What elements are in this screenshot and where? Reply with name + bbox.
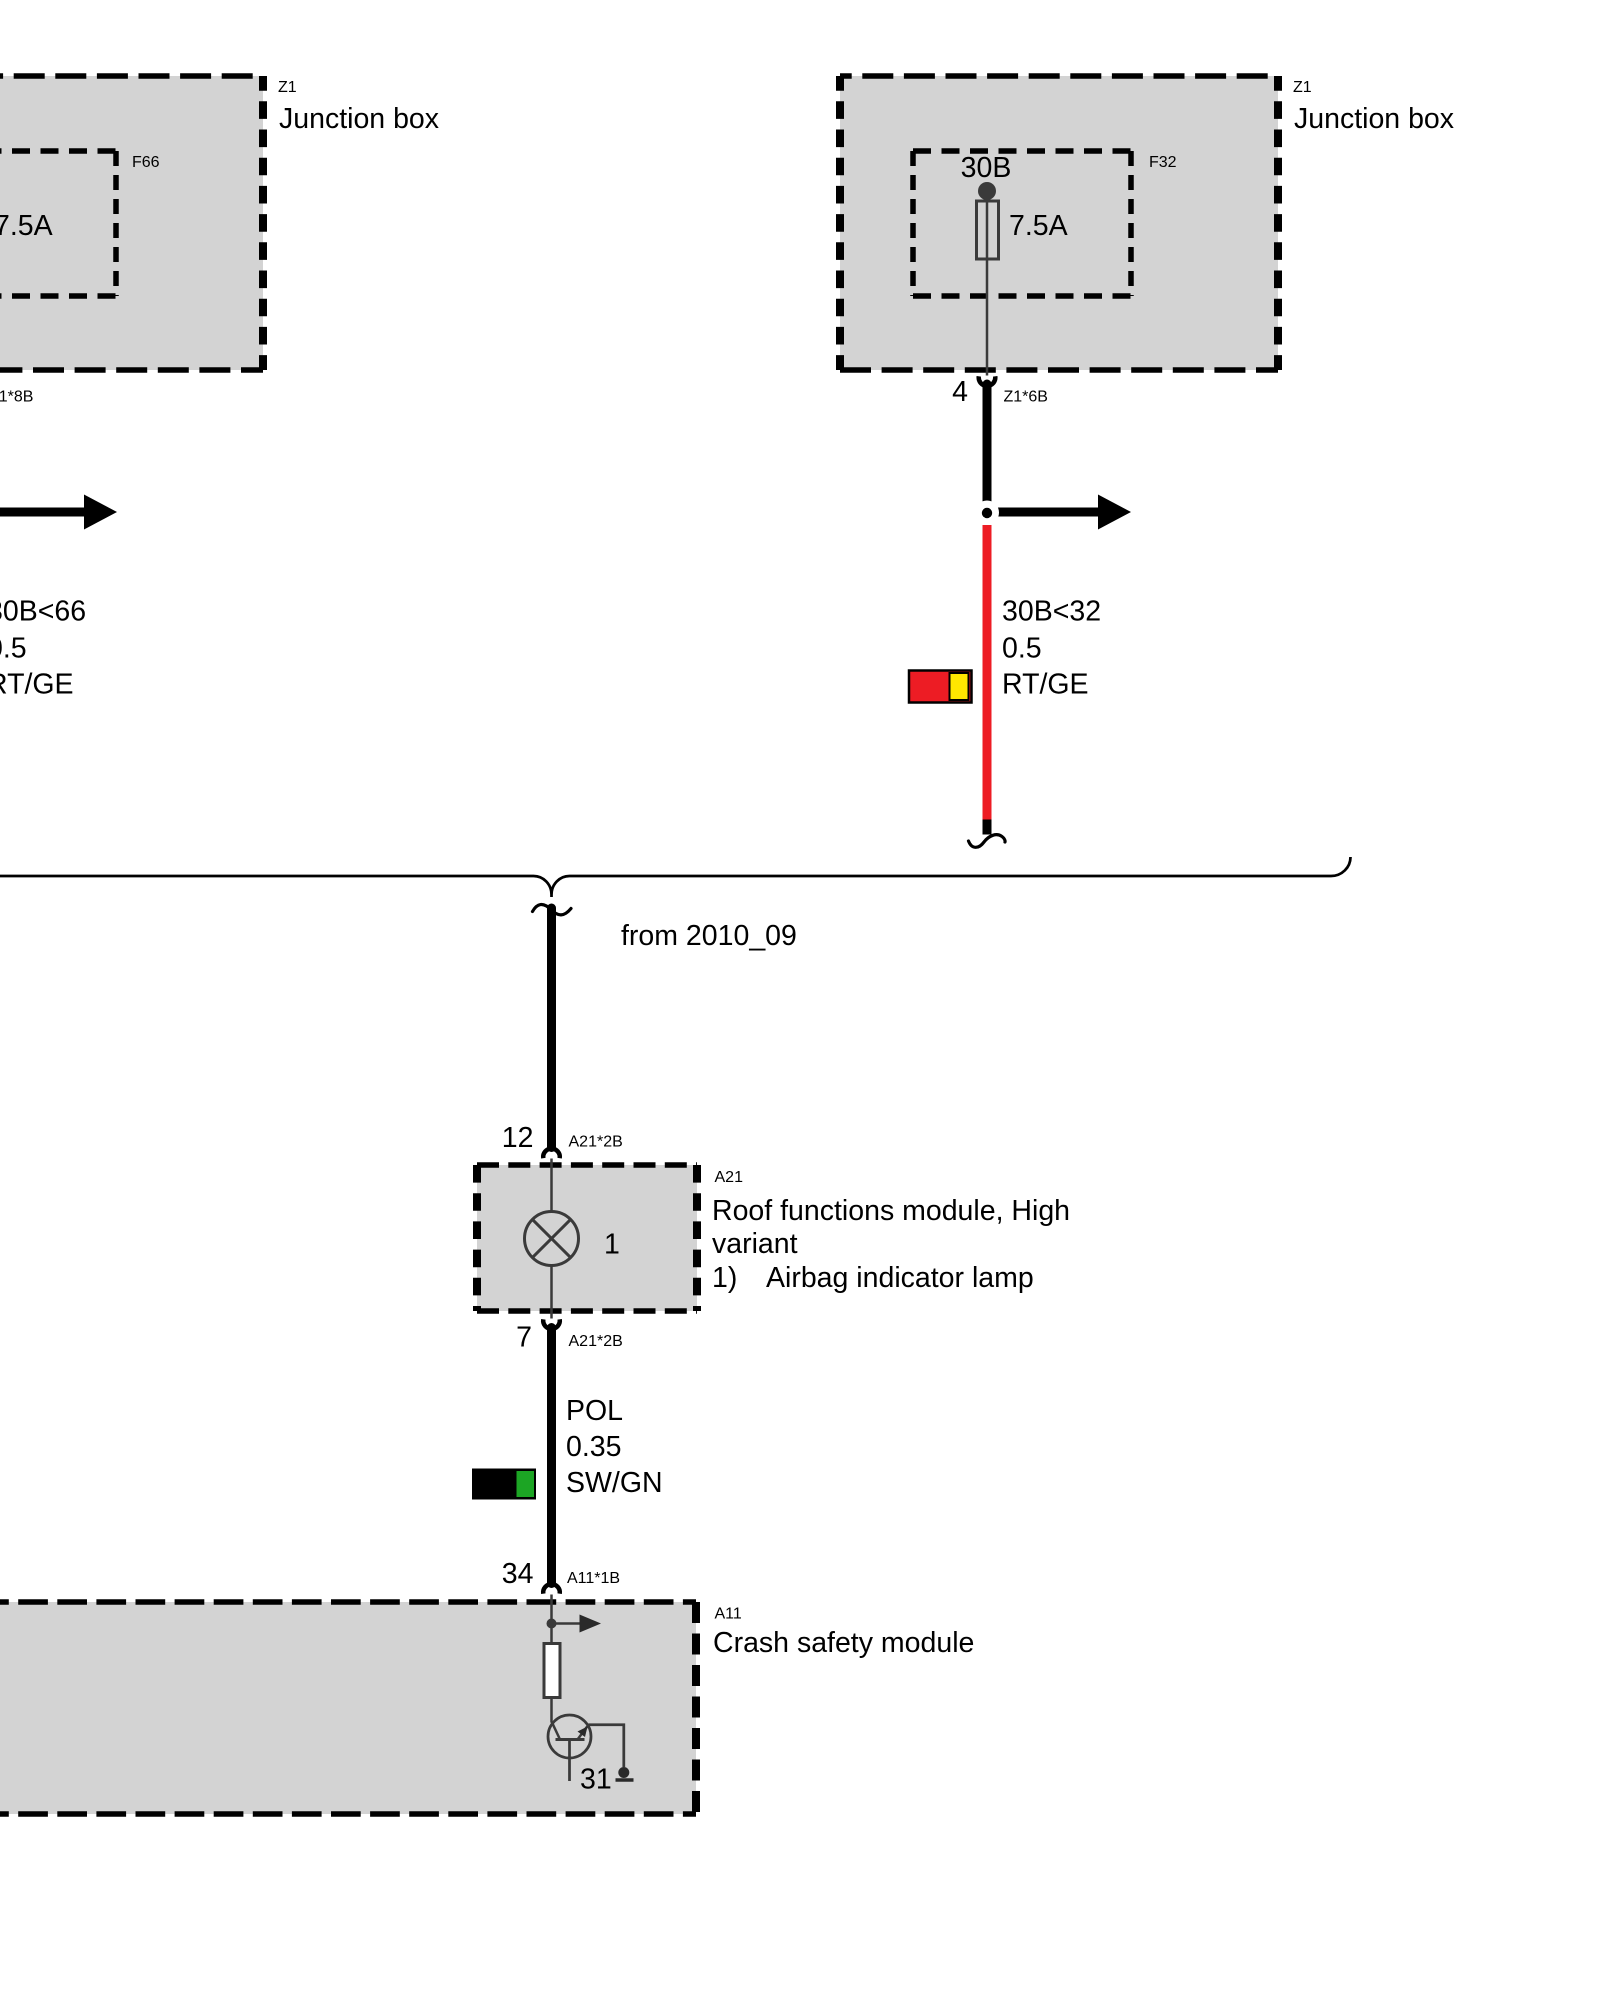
svg-text:A11: A11 — [715, 1606, 742, 1623]
svg-text:RT/GE: RT/GE — [0, 669, 74, 701]
svg-text:Junction box: Junction box — [279, 103, 439, 135]
svg-text:34: 34 — [502, 1558, 534, 1590]
svg-text:A21: A21 — [715, 1169, 744, 1186]
svg-text:A21*2B: A21*2B — [569, 1134, 623, 1151]
svg-text:7.5A: 7.5A — [1009, 210, 1068, 242]
svg-text:7.5A: 7.5A — [0, 210, 53, 242]
svg-text:12: 12 — [502, 1122, 534, 1154]
svg-text:Z1*6B: Z1*6B — [1004, 389, 1048, 406]
svg-text:RT/GE: RT/GE — [1002, 669, 1089, 701]
svg-text:Z1*8B: Z1*8B — [0, 389, 33, 406]
svg-text:Z1: Z1 — [278, 79, 297, 96]
svg-text:SW/GN: SW/GN — [566, 1467, 663, 1499]
svg-text:4: 4 — [952, 376, 968, 408]
svg-text:1: 1 — [604, 1229, 620, 1261]
svg-text:0.5: 0.5 — [1002, 633, 1042, 665]
svg-text:variant: variant — [712, 1228, 798, 1260]
svg-text:F66: F66 — [132, 154, 160, 171]
svg-text:0.5: 0.5 — [0, 633, 27, 665]
svg-text:30B<32: 30B<32 — [1002, 596, 1101, 628]
svg-text:A21*2B: A21*2B — [569, 1333, 623, 1350]
svg-text:7: 7 — [516, 1322, 532, 1354]
svg-text:0.35: 0.35 — [566, 1431, 621, 1463]
svg-text:1): 1) — [712, 1262, 737, 1294]
svg-text:Junction box: Junction box — [1294, 103, 1454, 135]
svg-text:from 2010_09: from 2010_09 — [621, 920, 797, 952]
svg-text:30B: 30B — [961, 152, 1012, 184]
svg-text:Crash safety module: Crash safety module — [713, 1627, 974, 1659]
svg-text:Airbag indicator lamp: Airbag indicator lamp — [766, 1262, 1034, 1294]
svg-text:Z1: Z1 — [1293, 79, 1312, 96]
svg-text:30B<66: 30B<66 — [0, 596, 86, 628]
svg-text:F32: F32 — [1149, 154, 1177, 171]
svg-text:POL: POL — [566, 1395, 623, 1427]
svg-text:31: 31 — [580, 1764, 612, 1796]
svg-text:Roof functions module, High: Roof functions module, High — [712, 1195, 1070, 1227]
svg-text:A11*1B: A11*1B — [567, 1570, 620, 1587]
